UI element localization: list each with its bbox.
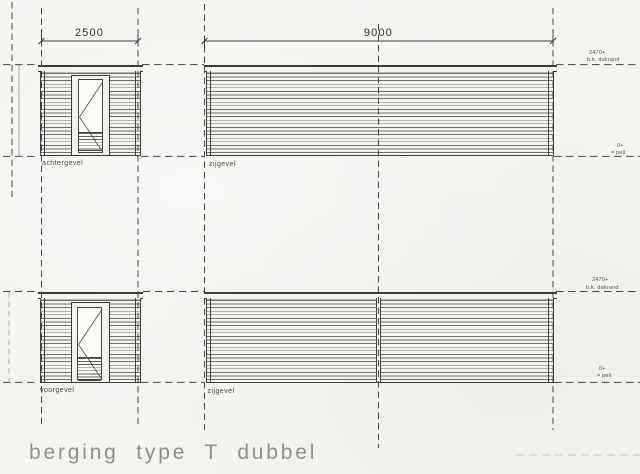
level-label-ground-top: = peil bbox=[611, 150, 626, 156]
door-leaf bbox=[77, 307, 102, 380]
door-swing-lines bbox=[78, 308, 103, 381]
door-frame bbox=[71, 75, 110, 156]
elevation-label-rear: achtergevel bbox=[42, 160, 83, 167]
drawing-title: berging type T dubbel bbox=[29, 441, 317, 465]
corner-trim bbox=[44, 298, 45, 382]
elevation-label-side-top: zijgevel bbox=[209, 161, 236, 168]
corner-trim bbox=[548, 71, 549, 155]
level-label-ground-bottom: = peil bbox=[597, 373, 612, 379]
door-leaf bbox=[78, 79, 103, 153]
elevation-label-front: voorgevel bbox=[40, 387, 74, 394]
door-swing-lines bbox=[79, 80, 104, 154]
corner-trim bbox=[210, 298, 211, 382]
level-value-ground-bottom: 0+ bbox=[599, 366, 606, 372]
level-value-roof-bottom: 2470+ bbox=[592, 277, 608, 283]
corner-trim bbox=[135, 298, 136, 382]
elevation-label-side-bottom: zijgevel bbox=[208, 388, 235, 395]
corner-trim bbox=[548, 298, 549, 382]
unit-divider bbox=[376, 298, 381, 382]
dimension-label-right: 9000 bbox=[357, 27, 400, 39]
drawing-sheet: 2500 9000 achtergevel zijgevel voorgevel… bbox=[0, 0, 640, 474]
wall-siding bbox=[206, 71, 554, 156]
corner-trim bbox=[135, 71, 136, 155]
level-value-roof-top: 2470+ bbox=[589, 50, 605, 56]
corner-trim bbox=[210, 71, 211, 155]
level-value-ground-top: 0+ bbox=[617, 143, 624, 149]
level-label-roof-top: b.k. dakrand bbox=[587, 57, 620, 63]
door-frame bbox=[71, 302, 111, 383]
corner-trim bbox=[44, 71, 45, 155]
level-label-roof-bottom: b.k. dakrand bbox=[586, 285, 619, 291]
dimension-label-left: 2500 bbox=[69, 27, 110, 39]
